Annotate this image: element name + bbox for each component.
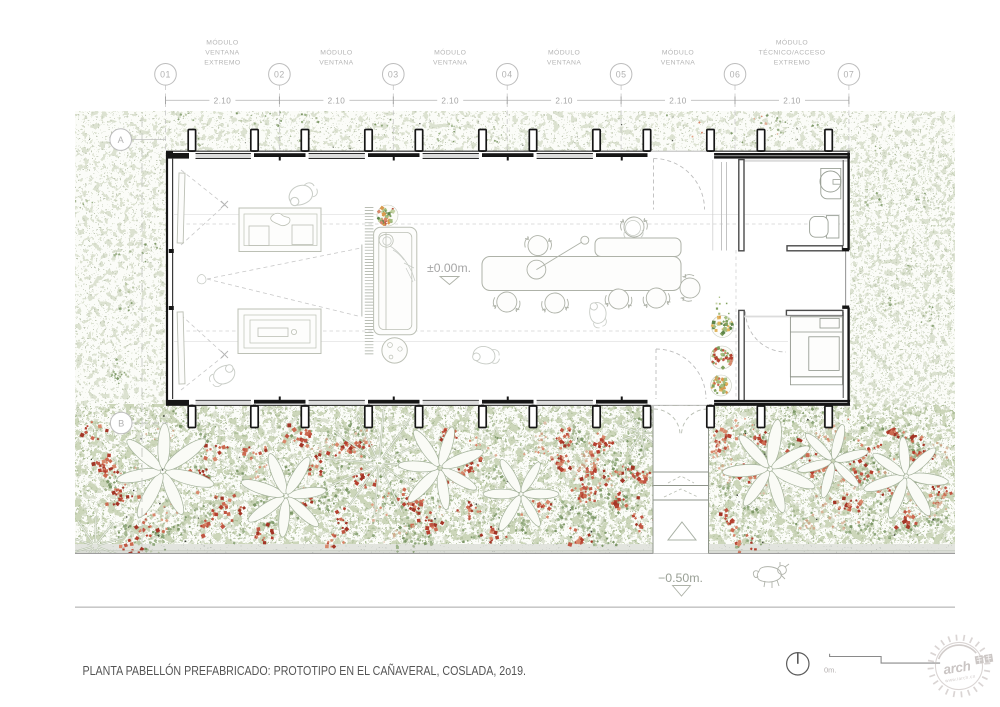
svg-text:VENTANA: VENTANA bbox=[661, 60, 695, 67]
svg-text:EXTREMO: EXTREMO bbox=[774, 60, 810, 67]
svg-text:MÓDULO: MÓDULO bbox=[320, 48, 352, 57]
svg-text:VENTANA: VENTANA bbox=[547, 60, 581, 67]
svg-text:VENTANA: VENTANA bbox=[319, 60, 353, 67]
svg-text:04: 04 bbox=[502, 70, 513, 80]
svg-text:2.10: 2.10 bbox=[669, 96, 687, 105]
svg-text:PLANTA PABELLÓN PREFABRICADO:: PLANTA PABELLÓN PREFABRICADO: PROTOTIPO … bbox=[83, 663, 527, 678]
svg-text:TÉCNICO/ACCESO: TÉCNICO/ACCESO bbox=[759, 48, 826, 57]
svg-text:VENTANA: VENTANA bbox=[205, 50, 239, 57]
svg-text:2.10: 2.10 bbox=[214, 96, 232, 105]
svg-text:05: 05 bbox=[616, 70, 627, 80]
svg-text:−0.50m.: −0.50m. bbox=[658, 571, 703, 585]
svg-text:MÓDULO: MÓDULO bbox=[434, 48, 466, 57]
svg-text:MÓDULO: MÓDULO bbox=[776, 38, 808, 47]
svg-text:2.10: 2.10 bbox=[555, 96, 573, 105]
svg-text:±0.00m.: ±0.00m. bbox=[427, 263, 471, 275]
svg-text:2.10: 2.10 bbox=[783, 96, 801, 105]
svg-text:MÓDULO: MÓDULO bbox=[548, 48, 580, 57]
svg-text:MÓDULO: MÓDULO bbox=[206, 38, 238, 47]
svg-text:02: 02 bbox=[274, 70, 285, 80]
svg-text:MÓDULO: MÓDULO bbox=[662, 48, 694, 57]
svg-text:03: 03 bbox=[388, 70, 399, 80]
svg-text:07: 07 bbox=[844, 70, 855, 80]
svg-text:06: 06 bbox=[730, 70, 741, 80]
svg-text:01: 01 bbox=[160, 70, 171, 80]
svg-text:2.10: 2.10 bbox=[441, 96, 459, 105]
svg-text:A: A bbox=[118, 135, 125, 145]
svg-text:2.10: 2.10 bbox=[328, 96, 346, 105]
svg-text:0m.: 0m. bbox=[824, 666, 837, 675]
svg-text:EXTREMO: EXTREMO bbox=[204, 60, 240, 67]
svg-text:VENTANA: VENTANA bbox=[433, 60, 467, 67]
svg-text:B: B bbox=[118, 419, 124, 429]
